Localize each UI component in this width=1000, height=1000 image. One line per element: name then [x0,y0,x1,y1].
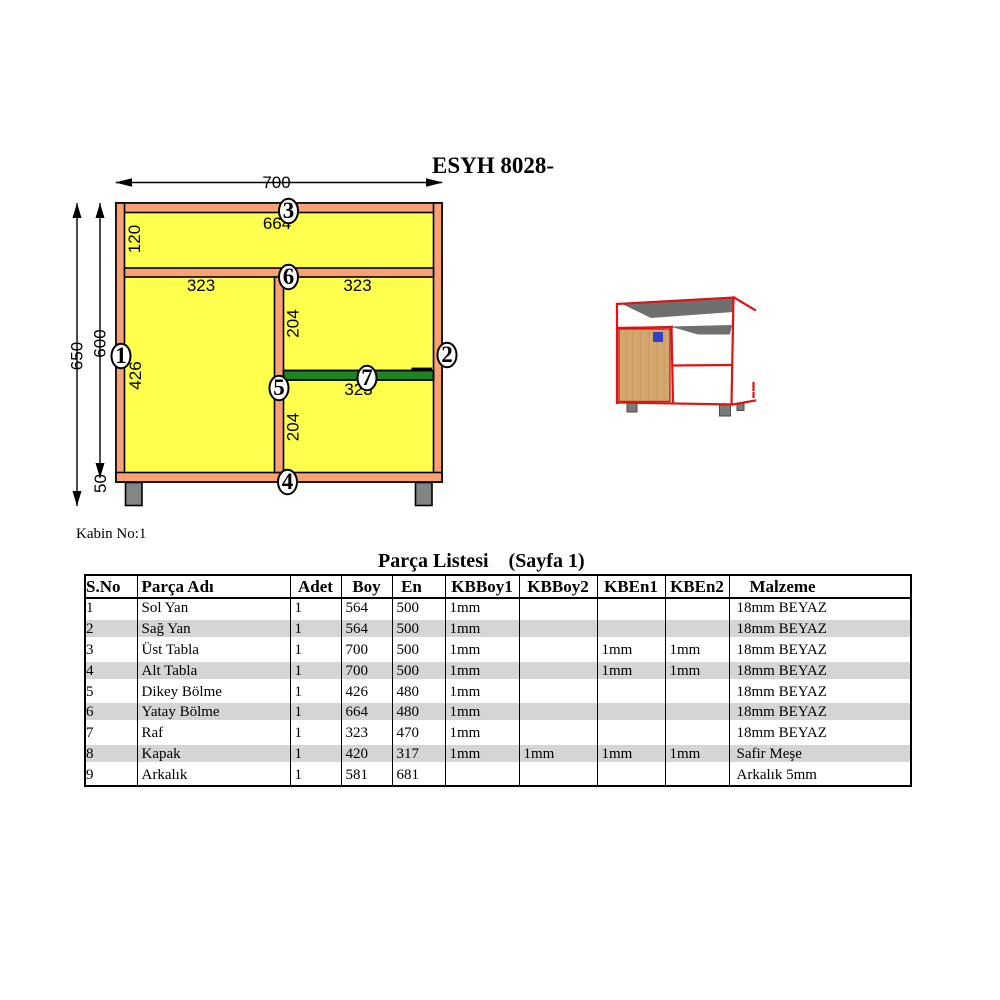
svg-text:323: 323 [343,276,371,295]
svg-text:650: 650 [68,342,87,370]
svg-text:3: 3 [283,198,295,223]
svg-text:426: 426 [126,361,145,389]
svg-text:2: 2 [441,342,453,367]
svg-text:1: 1 [115,343,127,368]
svg-text:204: 204 [284,309,303,337]
svg-text:6: 6 [283,264,295,289]
svg-text:50: 50 [91,474,110,493]
svg-text:204: 204 [284,413,303,441]
svg-text:120: 120 [125,225,144,253]
svg-text:5: 5 [273,375,285,400]
svg-text:700: 700 [262,173,290,192]
svg-text:600: 600 [91,329,110,357]
svg-text:323: 323 [187,276,215,295]
svg-text:7: 7 [361,365,373,390]
svg-text:4: 4 [282,469,294,494]
